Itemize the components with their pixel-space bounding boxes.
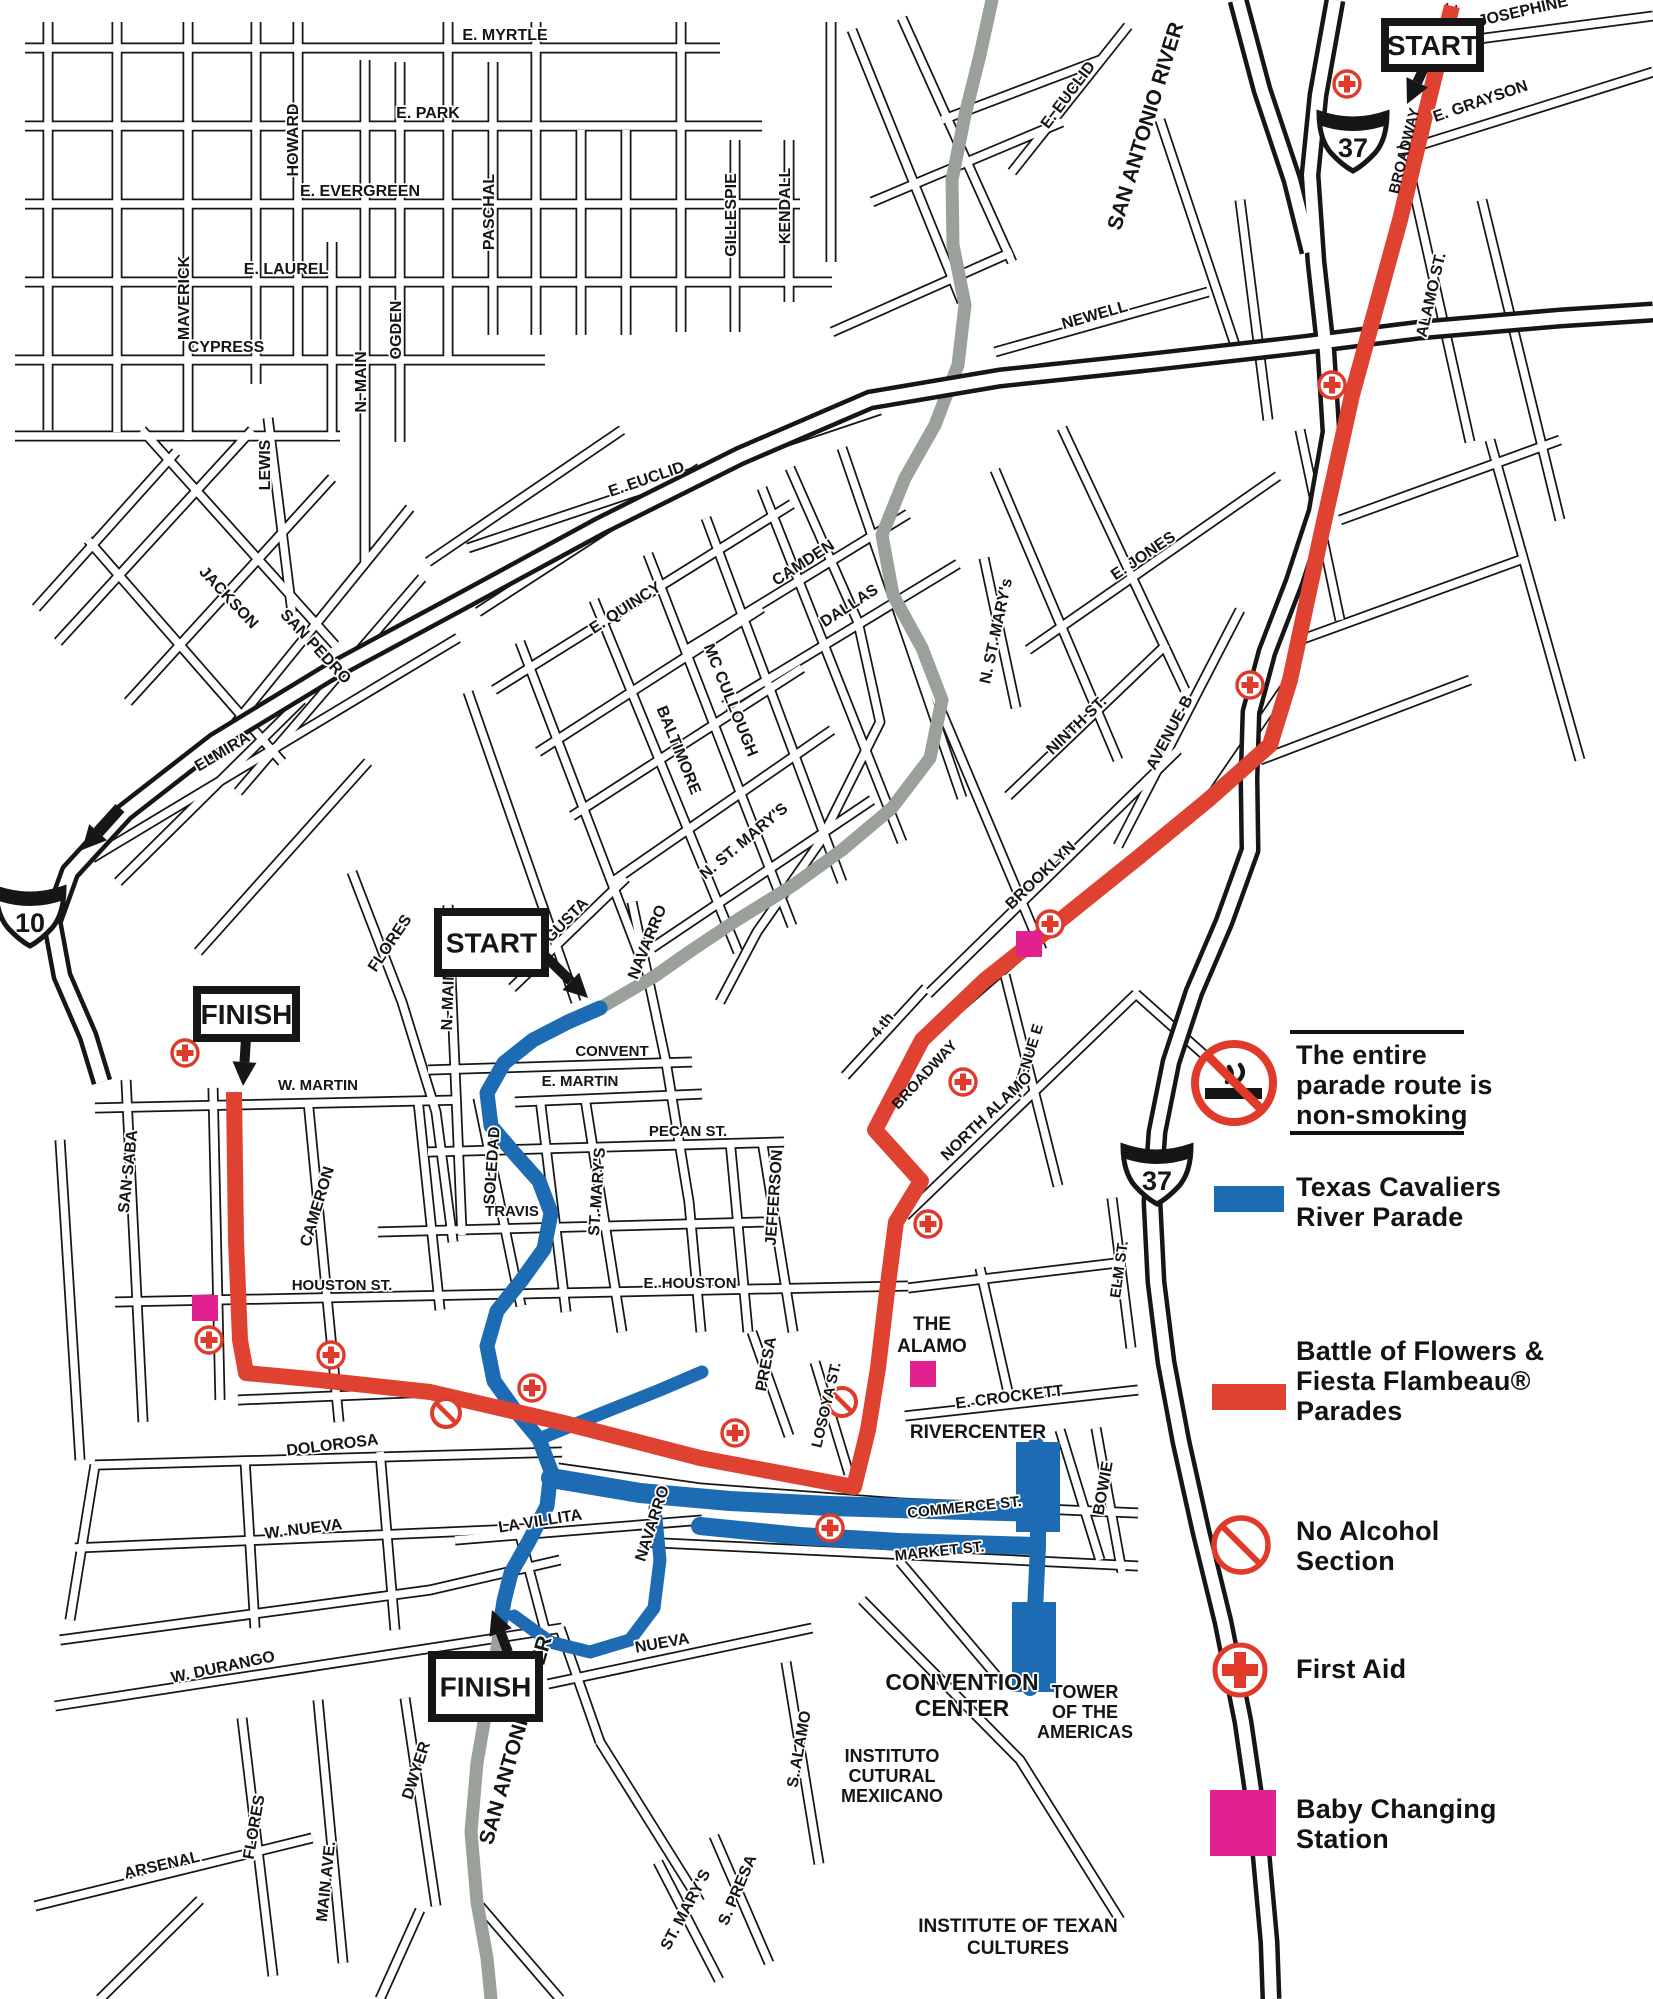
street-label: CONVENTION <box>885 1669 1038 1695</box>
street-label: LEWIS <box>257 439 274 490</box>
street-label: SAN SABA <box>116 1129 142 1214</box>
svg-text:37: 37 <box>1142 1166 1172 1196</box>
street-label: W. MARTIN <box>278 1077 358 1094</box>
street-label: INSTITUTE OF TEXAN <box>918 1916 1118 1937</box>
street-label: E. MARTIN <box>542 1073 619 1090</box>
street <box>245 1460 255 1628</box>
first-aid-icon <box>519 1375 545 1401</box>
street-label: TRAVIS <box>485 1203 539 1220</box>
first-aid-icon <box>950 1069 976 1095</box>
street-label: HOUSTON ST. <box>292 1277 393 1294</box>
parade-route-map-page: E. MYRTLEE. PARKE. EVERGREENE. LAURELCYP… <box>0 0 1653 1999</box>
street <box>100 1900 200 1999</box>
street <box>980 1268 1008 1392</box>
street <box>405 1698 436 1906</box>
street <box>60 1140 80 1460</box>
no-smoking-icon <box>1187 1036 1281 1130</box>
flower-parade-swatch <box>1212 1384 1286 1410</box>
street-label: ALAMO <box>897 1336 967 1357</box>
street-label: E. LAUREL <box>244 261 329 278</box>
svg-text:START: START <box>1387 30 1478 61</box>
street-label: E. PARK <box>396 105 460 122</box>
layer-red <box>234 6 1452 1487</box>
finish-marker: FINISH <box>197 990 296 1086</box>
baby-changing-icon <box>1016 931 1042 957</box>
map-canvas: E. MYRTLEE. PARKE. EVERGREENE. LAURELCYP… <box>0 0 1653 1999</box>
svg-text:START: START <box>446 928 537 959</box>
street <box>35 1838 312 1906</box>
street-label: KENDALL <box>777 168 794 245</box>
flower-parade-label: Battle of Flowers & Fiesta Flambeau® Par… <box>1296 1336 1544 1426</box>
baby-changing-icon <box>192 1295 218 1321</box>
street-label: CYPRESS <box>188 339 265 356</box>
street-label: SAN ANTONIO RIVER <box>1103 20 1188 233</box>
street <box>832 252 1012 332</box>
street-label: OF THE <box>1052 1702 1118 1722</box>
no-alcohol-label: No Alcohol Section <box>1296 1516 1440 1576</box>
first-aid-icon <box>318 1342 344 1368</box>
street <box>1240 200 1268 420</box>
street-label: THE <box>913 1314 951 1335</box>
highway <box>1238 0 1310 252</box>
street-label: N. MAIN <box>353 351 370 412</box>
street-label: OGDEN <box>388 301 405 360</box>
street-label: PECAN ST. <box>649 1123 727 1140</box>
street-label: CULTURES <box>967 1938 1069 1959</box>
finish-arrow <box>501 1632 508 1652</box>
street <box>428 1062 692 1070</box>
street-label: E. EVERGREEN <box>300 183 420 200</box>
finish-arrow <box>233 1061 257 1086</box>
baby-changing-icon <box>910 1361 936 1387</box>
svg-text:FINISH: FINISH <box>440 1672 532 1703</box>
street <box>600 1742 700 1902</box>
svg-text:37: 37 <box>1338 133 1368 163</box>
street <box>730 1140 748 1332</box>
street <box>900 1562 1000 1680</box>
baby-changing-swatch <box>1210 1790 1276 1856</box>
street-label: 4 th <box>868 1009 898 1040</box>
no-alcohol-icon <box>432 1399 460 1427</box>
first-aid-icon <box>817 1515 843 1541</box>
street-parade-route <box>234 6 1452 1487</box>
street-label: INSTITUTO <box>845 1746 940 1766</box>
street <box>1160 120 1240 360</box>
no-smoking-text: The entire parade route is non-smoking <box>1296 1040 1493 1130</box>
river-parade-swatch <box>1214 1186 1284 1212</box>
first-aid-icon <box>915 1211 941 1237</box>
first-aid-icon <box>1237 672 1263 698</box>
street <box>1340 440 1560 520</box>
street <box>380 1910 420 1999</box>
interstate-37-shield: 37 <box>1319 113 1387 171</box>
street <box>1490 440 1580 760</box>
street-label: CUTURAL <box>849 1766 936 1786</box>
street-label: MAVERICK <box>176 255 193 340</box>
baby-changing-label: Baby Changing Station <box>1296 1794 1497 1854</box>
first-aid-icon <box>196 1327 222 1353</box>
street-label: CONVENT <box>575 1043 648 1060</box>
first-aid-icon <box>722 1420 748 1446</box>
legend-rule-top <box>1290 1030 1464 1034</box>
street-label: E. HOUSTON <box>643 1275 736 1292</box>
river-parade-label: Texas Cavaliers River Parade <box>1296 1172 1501 1232</box>
street-label: MEXIICANO <box>841 1786 943 1806</box>
first-aid-icon <box>1319 372 1345 398</box>
interstate-37-shield: 37 <box>1123 1146 1191 1204</box>
street-label: HOWARD <box>285 104 302 177</box>
street-label: PASCHAL <box>481 174 498 250</box>
first-aid-icon <box>172 1040 198 1066</box>
street-label: E. MYRTLE <box>462 27 548 44</box>
street-label: DWYER <box>399 1739 434 1801</box>
first-aid-icon <box>1210 1640 1270 1700</box>
svg-text:10: 10 <box>15 908 45 938</box>
no-alcohol-icon <box>1208 1512 1274 1578</box>
street-label: AMERICAS <box>1037 1722 1133 1742</box>
svg-text:FINISH: FINISH <box>201 999 293 1030</box>
street-label: GILLESPIE <box>723 173 740 257</box>
first-aid-label: First Aid <box>1296 1654 1406 1684</box>
street <box>198 762 368 952</box>
street <box>908 1262 1125 1288</box>
convention-center-waterway <box>1016 1442 1060 1532</box>
legend-rule-bottom <box>1290 1131 1464 1135</box>
street <box>95 1100 460 1108</box>
street-label: RIVERCENTER <box>910 1422 1046 1443</box>
first-aid-icon <box>1334 71 1360 97</box>
street-label: CENTER <box>915 1695 1010 1721</box>
street-label: TOWER <box>1052 1682 1119 1702</box>
street-label: N. MAIN <box>439 969 458 1031</box>
